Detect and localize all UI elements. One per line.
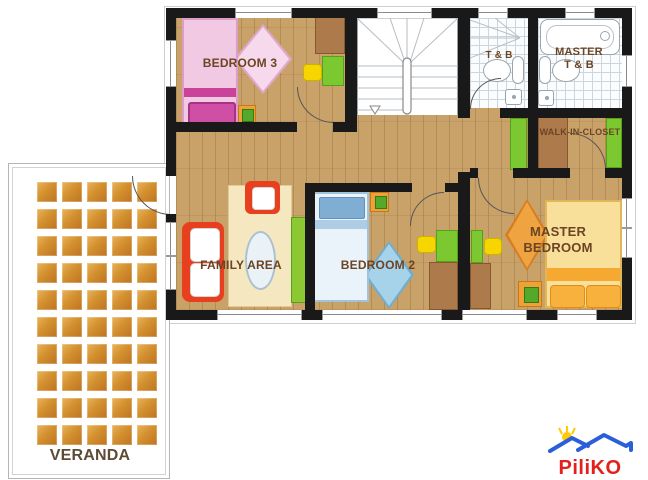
veranda-tile <box>62 317 82 337</box>
veranda-tile <box>112 236 132 256</box>
wall-bedroom3-bottom <box>166 122 297 132</box>
master-tb-label-line1: MASTER <box>534 46 624 58</box>
wall-master-top <box>513 168 528 178</box>
veranda-tile <box>137 209 157 229</box>
floorplan-stage: VERANDA <box>0 0 648 480</box>
window <box>622 228 632 258</box>
veranda-tile <box>37 209 57 229</box>
veranda-tile <box>87 317 107 337</box>
window <box>478 8 508 18</box>
window <box>557 310 597 320</box>
veranda-tile <box>112 263 132 283</box>
window <box>462 310 527 320</box>
bed-stripe <box>315 220 367 229</box>
closet-wardrobe-brown <box>538 116 568 170</box>
closet-wardrobe-green <box>606 118 622 168</box>
stair-railing <box>403 58 411 114</box>
veranda-tile <box>137 317 157 337</box>
bed-stripe <box>547 268 620 281</box>
wall-stair-left <box>345 18 357 122</box>
bedroom3-cushion <box>303 64 322 81</box>
veranda-tile <box>137 371 157 391</box>
wall-master-top <box>470 168 478 178</box>
veranda-tile <box>87 236 107 256</box>
sink-drain <box>545 96 549 100</box>
veranda-tile <box>62 425 82 445</box>
veranda-tiles <box>37 182 157 446</box>
bed-pillow <box>586 285 621 308</box>
veranda-tile <box>62 344 82 364</box>
bathtub-drain <box>600 31 610 41</box>
window <box>377 8 432 18</box>
veranda-tile <box>37 425 57 445</box>
wall-stair-right <box>458 18 470 118</box>
bed-stripe <box>184 88 236 97</box>
veranda-tile <box>87 209 107 229</box>
veranda-tile <box>87 398 107 418</box>
plant-icon <box>242 109 254 122</box>
bedroom3-label: BEDROOM 3 <box>176 56 304 70</box>
veranda-tile <box>37 290 57 310</box>
stairs <box>357 18 458 115</box>
walk-in-closet-label: WALK-IN-CLOSET <box>532 127 628 137</box>
bedroom3-chair <box>322 56 344 86</box>
piliko-logo-text: PiliKO <box>538 459 642 477</box>
wall-bedroom3-stub <box>333 122 357 132</box>
veranda-tile <box>37 371 57 391</box>
veranda-tile <box>112 290 132 310</box>
veranda-tile <box>62 182 82 202</box>
sink-icon <box>505 89 522 105</box>
wall-closet-bottom <box>605 168 632 178</box>
veranda-tile <box>112 398 132 418</box>
sink-icon <box>538 90 554 106</box>
hall-wardrobe-green <box>510 118 527 170</box>
window <box>622 198 632 228</box>
veranda-tile <box>62 398 82 418</box>
veranda-tile <box>112 344 132 364</box>
master-bedroom-label-line1: MASTER <box>502 224 614 239</box>
master-nightstand <box>518 281 542 307</box>
bedroom3-desk <box>315 14 345 54</box>
sink-drain <box>512 95 516 99</box>
armchair <box>245 181 280 214</box>
veranda-tile <box>62 263 82 283</box>
veranda-tile <box>87 425 107 445</box>
veranda-tile <box>112 209 132 229</box>
veranda-tile <box>137 425 157 445</box>
wall <box>166 8 176 176</box>
window <box>565 8 595 18</box>
wall-bedroom2-top <box>305 183 412 192</box>
plant-icon <box>524 287 539 303</box>
veranda-tile <box>137 263 157 283</box>
wall-closet-bottom <box>538 168 570 178</box>
veranda-tile <box>37 182 57 202</box>
wall-central <box>458 172 470 310</box>
plant-icon <box>375 196 387 209</box>
veranda-tile <box>37 344 57 364</box>
veranda-tile <box>112 317 132 337</box>
tb-label: T & B <box>466 50 532 61</box>
bedroom2-cushion <box>417 236 436 253</box>
wall-bedroom2-left <box>305 183 315 310</box>
veranda-label: VERANDA <box>28 447 152 465</box>
window <box>235 8 292 18</box>
bed-pillow <box>319 197 365 219</box>
window <box>166 256 176 290</box>
veranda-tile <box>37 317 57 337</box>
veranda-tile <box>137 398 157 418</box>
veranda-tile <box>87 182 107 202</box>
armchair-cushion <box>252 187 275 210</box>
veranda-tile <box>137 344 157 364</box>
window <box>322 310 442 320</box>
veranda-tile <box>112 371 132 391</box>
veranda-tile <box>62 371 82 391</box>
veranda-tile <box>137 236 157 256</box>
bedroom2-label: BEDROOM 2 <box>316 258 440 272</box>
veranda-tile <box>137 290 157 310</box>
master-desk <box>470 263 491 309</box>
wall-bedroom2-stub <box>445 183 458 192</box>
veranda-tile <box>87 290 107 310</box>
master-cushion <box>484 238 502 255</box>
window <box>166 222 176 256</box>
family-area-label: FAMILY AREA <box>182 258 300 272</box>
veranda-tile <box>37 263 57 283</box>
master-tb-label-line2: T & B <box>534 59 624 71</box>
window <box>166 40 176 87</box>
master-bedroom-label-line2: BEDROOM <box>502 240 614 255</box>
veranda-tile <box>112 425 132 445</box>
window <box>217 310 302 320</box>
veranda-tile <box>62 209 82 229</box>
veranda-tile <box>37 398 57 418</box>
piliko-logo: PiliKO <box>538 424 642 476</box>
wall-tb-bottom <box>500 108 632 118</box>
veranda-tile <box>37 236 57 256</box>
master-wardrobe <box>471 230 483 263</box>
bedroom2-nightstand <box>370 192 389 212</box>
veranda-tile <box>87 371 107 391</box>
bed-pillow <box>550 285 585 308</box>
veranda-tile <box>62 236 82 256</box>
piliko-roof-icon <box>544 424 636 454</box>
sofa-cushion <box>190 228 220 262</box>
veranda-tile <box>62 290 82 310</box>
veranda-tile <box>112 182 132 202</box>
veranda-tile <box>87 344 107 364</box>
bedroom2-bed <box>313 192 369 302</box>
veranda-tile <box>87 263 107 283</box>
bedroom3-bed <box>182 18 238 128</box>
